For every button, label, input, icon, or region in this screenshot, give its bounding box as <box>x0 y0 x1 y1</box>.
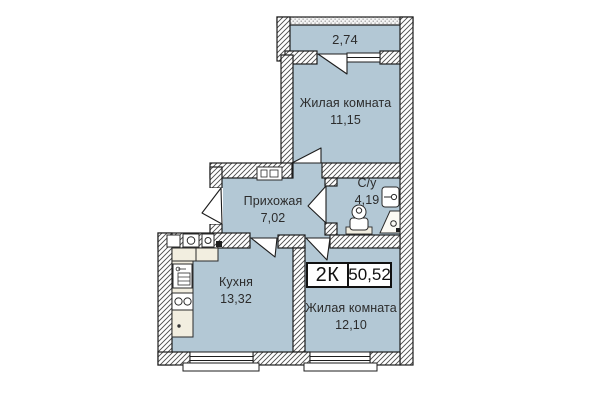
bathroom-name: С/у <box>332 175 402 192</box>
apartment-total-area: 50,52 <box>349 264 390 286</box>
washing-machine-icon <box>202 234 214 247</box>
hall-bottom-wall-mid <box>278 235 305 248</box>
kitchen-name: Кухня <box>198 274 274 291</box>
fridge-icon <box>167 235 180 247</box>
kitchen-appliances <box>167 234 222 247</box>
hallway-name: Прихожая <box>223 193 323 210</box>
living-room-2-name: Жилая комната <box>295 300 407 317</box>
kitchen-left-wall <box>158 233 172 365</box>
apartment-type-label: 2К <box>308 264 349 286</box>
washing-machine-icon <box>183 234 199 247</box>
bottom-wall-mid <box>253 352 310 365</box>
living-room-2-area: 12,10 <box>295 317 407 334</box>
room-label-hallway: Прихожая 7,02 <box>223 193 323 226</box>
balcony-area: 2,74 <box>290 32 400 49</box>
vent-icon <box>216 241 222 247</box>
living-room-1-area: 11,15 <box>288 112 403 129</box>
kitchen-window-icon <box>183 352 259 371</box>
apartment-summary-badge: 2К 50,52 <box>306 262 392 288</box>
room-label-balcony: 2,74 <box>290 32 400 49</box>
kitchen-sink-icon <box>173 264 192 288</box>
room-label-bathroom: С/у 4,19 <box>332 175 402 208</box>
balcony-sill-right <box>380 51 400 64</box>
bathroom-area: 4,19 <box>332 192 402 209</box>
room-label-kitchen: Кухня 13,32 <box>198 274 274 307</box>
bathroom-bottom-wall <box>330 235 400 248</box>
stove-burners-icon <box>172 293 193 310</box>
living2-window-icon <box>304 352 377 371</box>
water-heater-icon <box>257 167 282 180</box>
room-label-living-room-1: Жилая комната 11,15 <box>288 95 403 128</box>
counter-top-run <box>172 248 218 261</box>
balcony-window-icon <box>347 53 380 62</box>
bathroom-wall-lower <box>325 223 337 235</box>
balcony-parapet-wall <box>277 17 413 25</box>
hallway-area: 7,02 <box>223 210 323 227</box>
room-label-living-room-2: Жилая комната 12,10 <box>295 300 407 333</box>
cabinet-knob-icon <box>177 324 180 327</box>
living-room-1-name: Жилая комната <box>288 95 403 112</box>
hallway-left-wall-upper <box>210 167 222 188</box>
floor-plan-canvas: 2,74 Жилая комната 11,15 С/у 4,19 Прихож… <box>0 0 600 400</box>
kitchen-area: 13,32 <box>198 291 274 308</box>
